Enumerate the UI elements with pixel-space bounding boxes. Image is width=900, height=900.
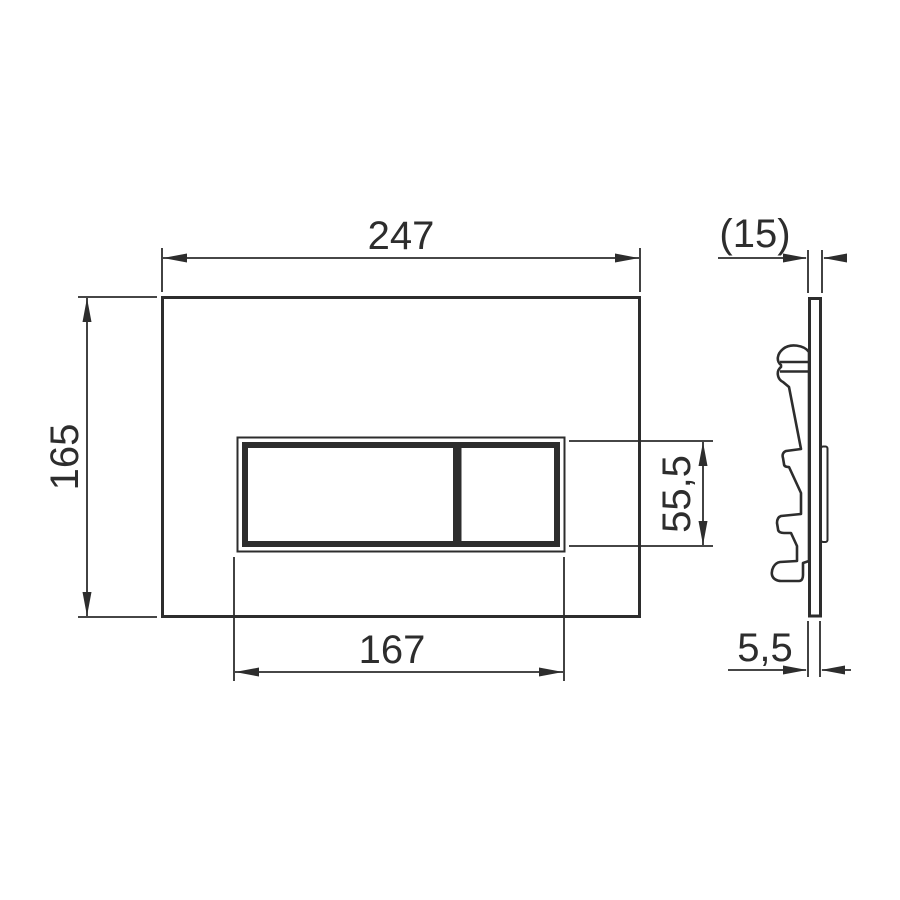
arrowhead-top <box>699 442 708 466</box>
dimension-front-width: 247 <box>162 214 640 292</box>
dimension-label-167: 167 <box>359 628 426 672</box>
button-divider <box>453 446 462 543</box>
dimension-label-15: (15) <box>719 212 790 256</box>
arrowhead-right <box>821 666 845 675</box>
dimension-label-247: 247 <box>368 214 435 258</box>
arrowhead-right <box>539 668 563 677</box>
dimension-plate-thickness: 5,5 <box>728 621 851 677</box>
dimension-side-depth: (15) <box>718 212 847 293</box>
arrowhead-right <box>615 254 639 263</box>
arrowhead-top <box>83 298 92 322</box>
plate-profile <box>810 299 821 617</box>
arrowhead-bottom <box>83 592 92 616</box>
flush-plate-drawing: 247 165 167 55,5 (1 <box>0 0 900 900</box>
arrowhead-left <box>163 254 187 263</box>
technical-drawing-canvas: 247 165 167 55,5 (1 <box>0 0 900 900</box>
mounting-clip-profile <box>772 345 809 581</box>
dimension-label-55-5: 55,5 <box>655 455 699 533</box>
dimension-label-165: 165 <box>43 424 87 491</box>
extension-lines <box>808 621 820 677</box>
side-view <box>772 299 828 617</box>
extension-lines <box>808 250 822 293</box>
arrowhead-right <box>823 254 847 263</box>
dimension-label-5-5: 5,5 <box>737 626 793 670</box>
arrowhead-bottom <box>699 521 708 545</box>
dimension-front-height: 165 <box>43 297 157 617</box>
arrowhead-left <box>235 668 259 677</box>
extension-lines <box>78 297 157 617</box>
